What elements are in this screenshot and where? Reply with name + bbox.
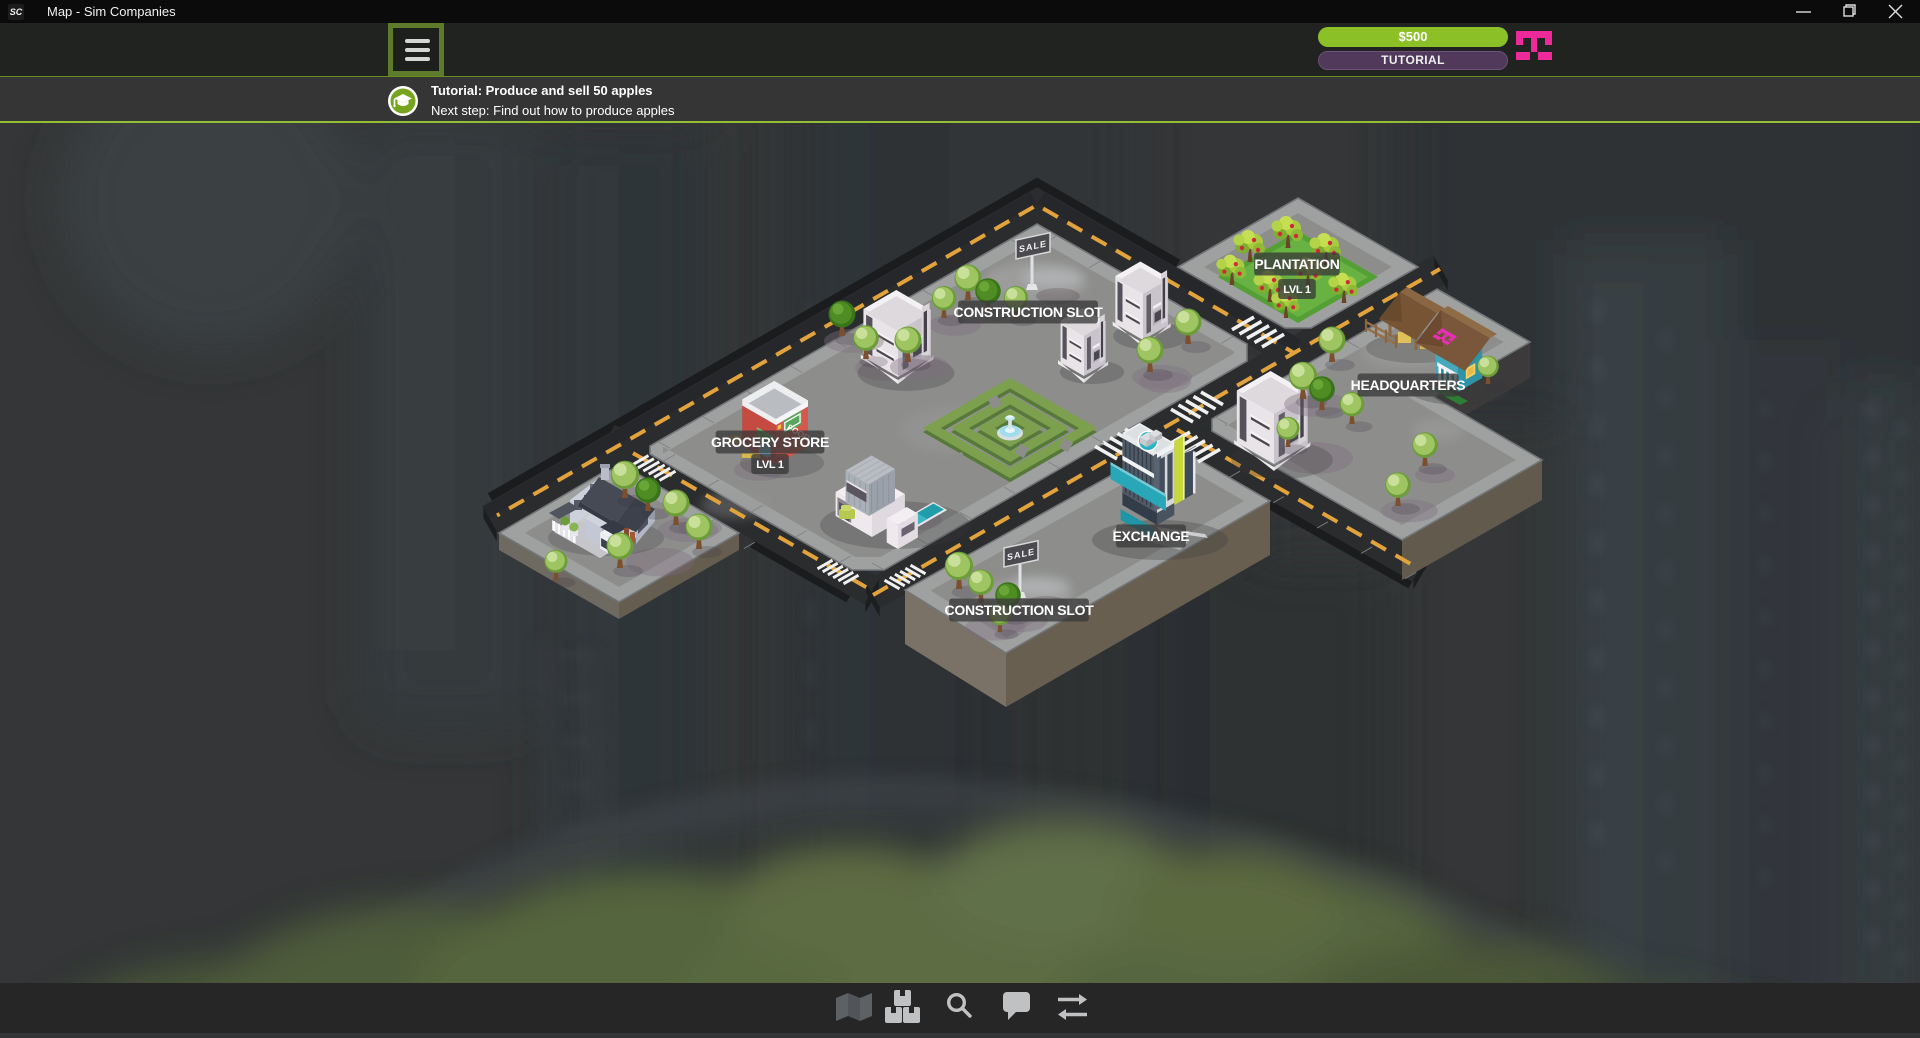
- svg-text:CONSTRUCTION SLOT: CONSTRUCTION SLOT: [945, 602, 1095, 618]
- svg-text:EXCHANGE: EXCHANGE: [1113, 528, 1190, 544]
- svg-text:PLANTATION: PLANTATION: [1254, 256, 1339, 272]
- svg-text:HEADQUARTERS: HEADQUARTERS: [1351, 377, 1466, 393]
- svg-text:LVL 1: LVL 1: [756, 459, 784, 471]
- svg-text:CONSTRUCTION SLOT: CONSTRUCTION SLOT: [954, 304, 1104, 320]
- svg-text:LVL 1: LVL 1: [1283, 284, 1311, 296]
- svg-text:GROCERY STORE: GROCERY STORE: [711, 434, 829, 450]
